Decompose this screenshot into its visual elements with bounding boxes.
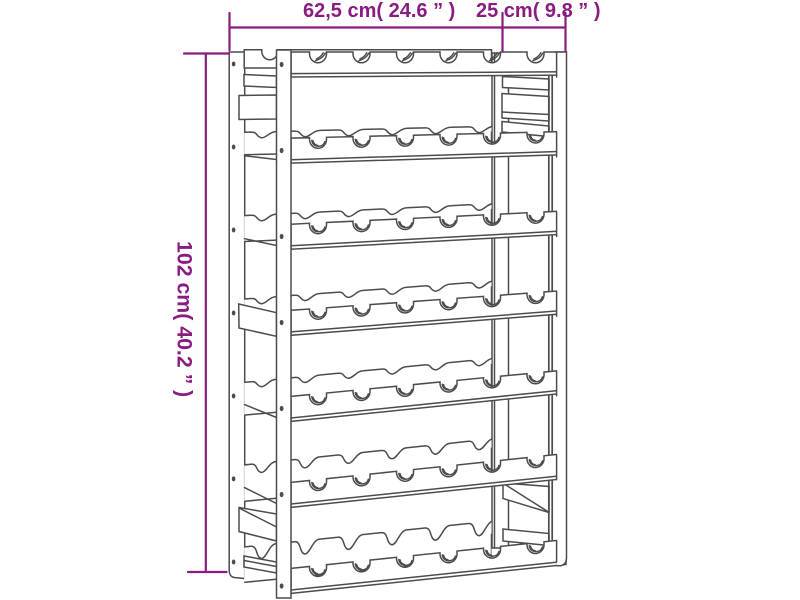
svg-text:25 cm( 9.8 ” ): 25 cm( 9.8 ” ) xyxy=(476,0,601,22)
svg-text:62,5 cm( 24.6 ” ): 62,5 cm( 24.6 ” ) xyxy=(303,0,455,22)
svg-text:102 cm( 40.2 ” ): 102 cm( 40.2 ” ) xyxy=(173,241,197,397)
